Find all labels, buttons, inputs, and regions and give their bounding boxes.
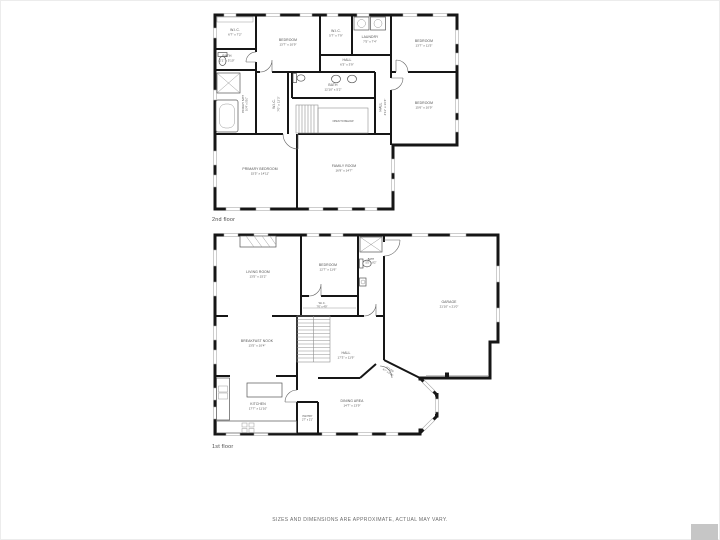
room-label-breakfastnook-dims: 13'5" x 10'4" bbox=[248, 344, 265, 348]
room-label-bedroom3-name: BEDROOM bbox=[415, 101, 433, 105]
room-label-wic3-dims: 7'0" x 12'3" bbox=[277, 96, 281, 111]
toilet-icon bbox=[293, 74, 297, 83]
room-label-kitchen-dims: 17'7" x 11'10" bbox=[249, 407, 268, 411]
room-label-laundry-dims: 7'5" x 7'4" bbox=[363, 40, 377, 44]
room-label-bedroom2-name: BEDROOM bbox=[415, 39, 433, 43]
room-label-breakfastnook-name: BREAKFAST NOOK bbox=[241, 339, 274, 343]
room-label-bedroom1-name: BEDROOM bbox=[279, 38, 297, 42]
floor1-stairs bbox=[297, 316, 330, 362]
room-label-wic1-name: W.I.C. bbox=[230, 28, 240, 32]
room-label-wic3-name: W.I.C. bbox=[272, 99, 276, 109]
room-label-familyroom-dims: 16'9" x 14'7" bbox=[335, 169, 352, 173]
room-label-kitchen-name: KITCHEN bbox=[250, 402, 266, 406]
room-label-familyroom-name: FAMILY ROOM bbox=[332, 164, 356, 168]
floorplan-canvas: W.I.C. 6'7" x 7'2" BATH 2'1" x 5'10" BED… bbox=[0, 0, 720, 540]
room-label-primarybath-dims: 10'4" x 5'10" bbox=[246, 97, 249, 111]
dryer-icon bbox=[371, 17, 386, 30]
floor-1-caption: 1st floor bbox=[212, 444, 233, 450]
room-label-bath2-name: BATH bbox=[328, 83, 338, 87]
floor-1-plan: LIVING ROOM 13'5" x 15'2" BEDROOM 12'7" … bbox=[212, 232, 502, 442]
room-label-bedroom3-dims: 15'6" x 10'9" bbox=[415, 106, 432, 110]
room-label-laundry-name: LAUNDRY bbox=[362, 35, 379, 39]
room-label-bath2-dims: 12'10" x 5'2" bbox=[324, 88, 341, 92]
closet-shelf bbox=[217, 17, 253, 22]
room-label-primarybedroom-dims: 15'5" x 14'11" bbox=[251, 172, 270, 176]
room-label-wic1-dims: 6'7" x 7'2" bbox=[228, 33, 242, 37]
room-label-wic-dims: 7'6" x 4'9" bbox=[317, 306, 328, 309]
room-label-bath1-dims: 2'1" x 5'10" bbox=[219, 59, 234, 63]
room-label-wic2-dims: 5'7" x 7'9" bbox=[329, 34, 343, 38]
room-label-garage-dims: 21'10" x 21'0" bbox=[440, 305, 459, 309]
room-label-hall2-dims: 6'3" x 3'9" bbox=[340, 63, 354, 67]
floor2-labels: W.I.C. 6'7" x 7'2" BATH 2'1" x 5'10" BED… bbox=[219, 28, 433, 176]
room-label-bedroom1-dims: 13'7" x 10'9" bbox=[279, 43, 296, 47]
watermark-box bbox=[691, 524, 718, 540]
room-label-pantry-dims: 2'7" x 2'1" bbox=[302, 419, 313, 422]
room-label-bedroom-name: BEDROOM bbox=[319, 263, 337, 267]
room-label-bath-dims: 5'5" x 8'2" bbox=[366, 262, 377, 265]
room-label-hall1-dims: 17'3" x 11'9" bbox=[338, 356, 355, 360]
room-label-wic2-name: W.I.C. bbox=[331, 29, 341, 33]
room-label-open-to-below: OPEN TO BELOW bbox=[333, 120, 355, 123]
washer-icon bbox=[354, 17, 369, 30]
room-label-hall2-name: HALL bbox=[343, 58, 352, 62]
room-label-bedroom-dims: 12'7" x 11'6" bbox=[320, 268, 337, 272]
floor-2-plan: W.I.C. 6'7" x 7'2" BATH 2'1" x 5'10" BED… bbox=[212, 12, 462, 212]
room-label-hallvert-name: HALL bbox=[379, 103, 383, 112]
floor2-stairs bbox=[296, 105, 368, 133]
room-label-livingroom-name: LIVING ROOM bbox=[246, 270, 270, 274]
room-label-diningarea-dims: 14'7" x 13'9" bbox=[343, 404, 360, 408]
kitchen-counter bbox=[217, 421, 297, 433]
kitchen-island bbox=[247, 383, 282, 397]
room-label-hall1-name: HALL bbox=[342, 351, 351, 355]
room-label-primarybedroom-name: PRIMARY BEDROOM bbox=[242, 167, 277, 171]
room-label-bath1-name: BATH bbox=[222, 54, 232, 58]
room-label-livingroom-dims: 13'5" x 15'2" bbox=[249, 275, 266, 279]
sink-icon bbox=[332, 75, 341, 83]
room-label-bedroom2-dims: 13'7" x 11'5" bbox=[416, 44, 433, 48]
room-label-garage-name: GARAGE bbox=[441, 300, 457, 304]
floor-2-caption: 2nd floor bbox=[212, 217, 235, 223]
disclaimer-text: SIZES AND DIMENSIONS ARE APPROXIMATE, AC… bbox=[0, 517, 720, 523]
sink-icon bbox=[348, 75, 357, 83]
room-label-diningarea-name: DINING AREA bbox=[341, 399, 365, 403]
room-label-hallvert-dims: 4'11" x 16'4" bbox=[383, 99, 387, 116]
